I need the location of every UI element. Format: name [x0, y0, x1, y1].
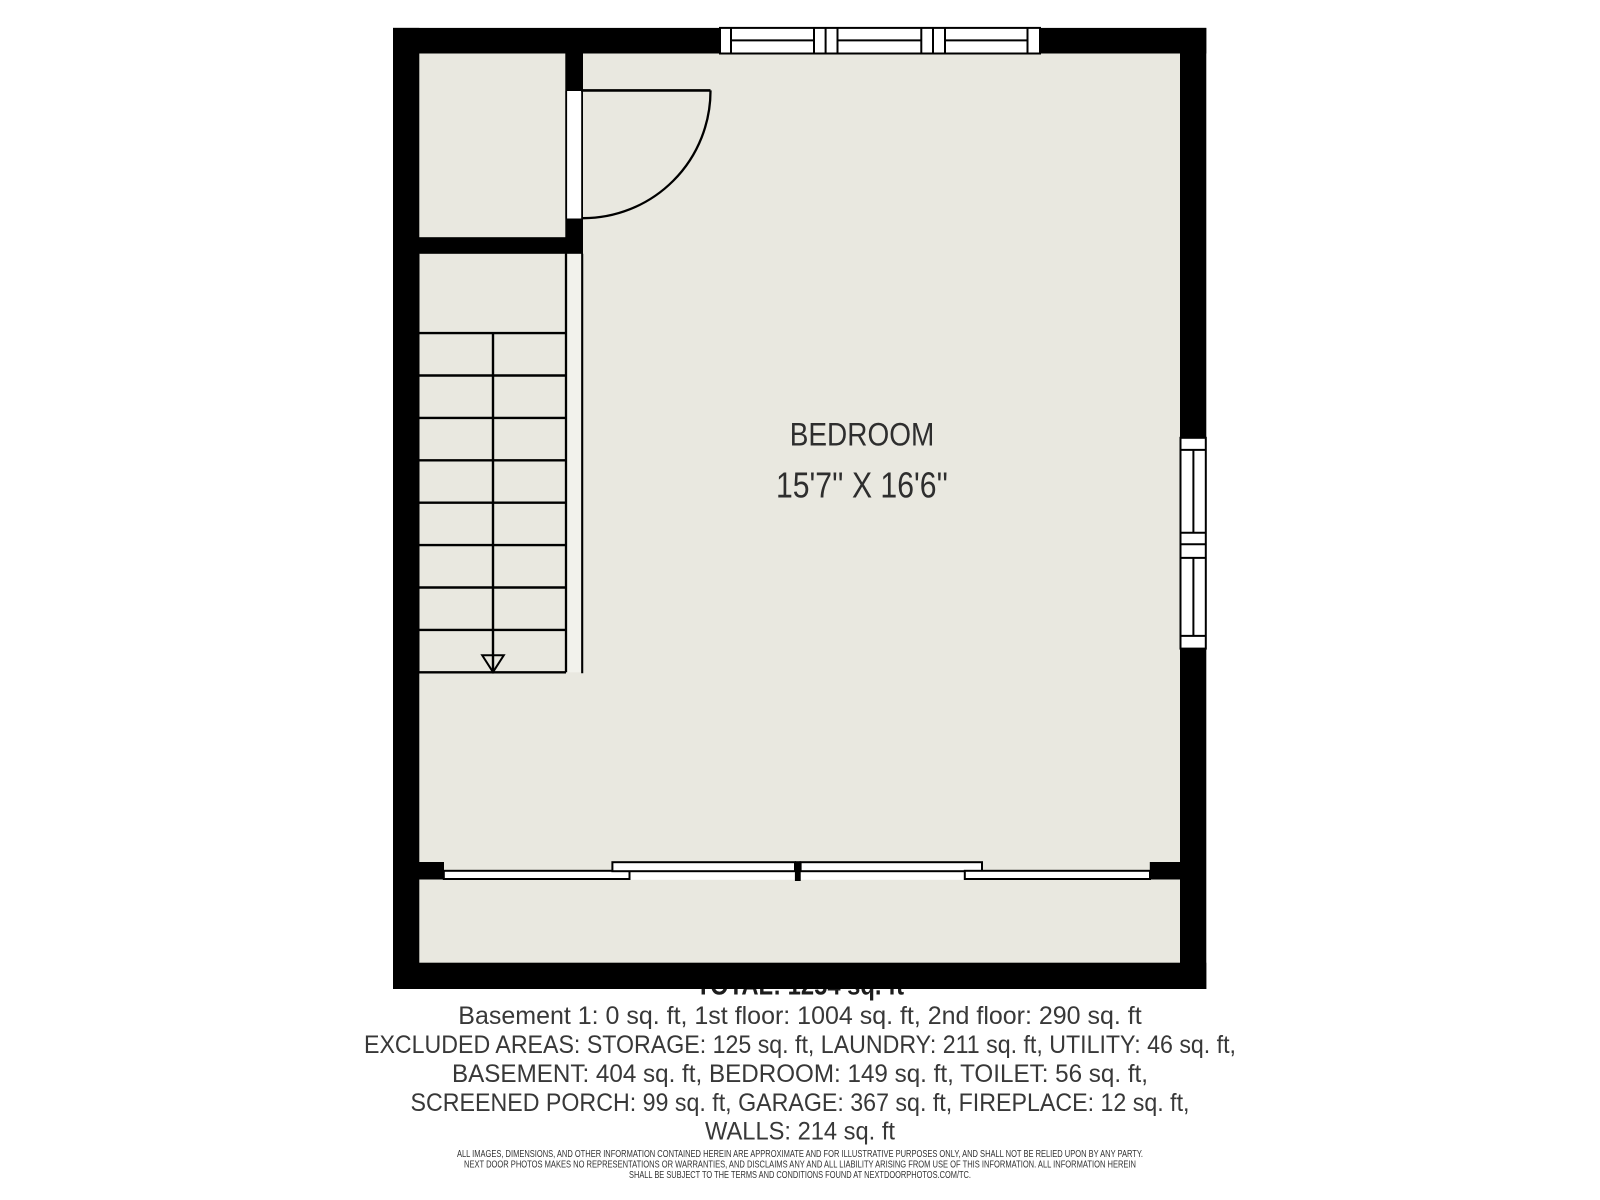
svg-text:EXCLUDED AREAS: STORAGE: 125 s: EXCLUDED AREAS: STORAGE: 125 sq. ft, LAU…	[364, 1032, 1236, 1059]
svg-text:BASEMENT: 404 sq. ft, BEDROOM:: BASEMENT: 404 sq. ft, BEDROOM: 149 sq. f…	[452, 1061, 1148, 1088]
svg-text:WALLS: 214 sq. ft: WALLS: 214 sq. ft	[705, 1119, 895, 1146]
svg-text:BEDROOM: BEDROOM	[790, 416, 935, 452]
svg-text:15'7'' X 16'6'': 15'7'' X 16'6''	[776, 465, 948, 505]
svg-text:SHALL BE SUBJECT TO THE TERMS: SHALL BE SUBJECT TO THE TERMS AND CONDIT…	[629, 1170, 971, 1181]
svg-text:Basement 1: 0 sq. ft, 1st floo: Basement 1: 0 sq. ft, 1st floor: 1004 sq…	[458, 1003, 1142, 1030]
svg-text:SCREENED PORCH: 99 sq. ft, GAR: SCREENED PORCH: 99 sq. ft, GARAGE: 367 s…	[411, 1090, 1190, 1117]
